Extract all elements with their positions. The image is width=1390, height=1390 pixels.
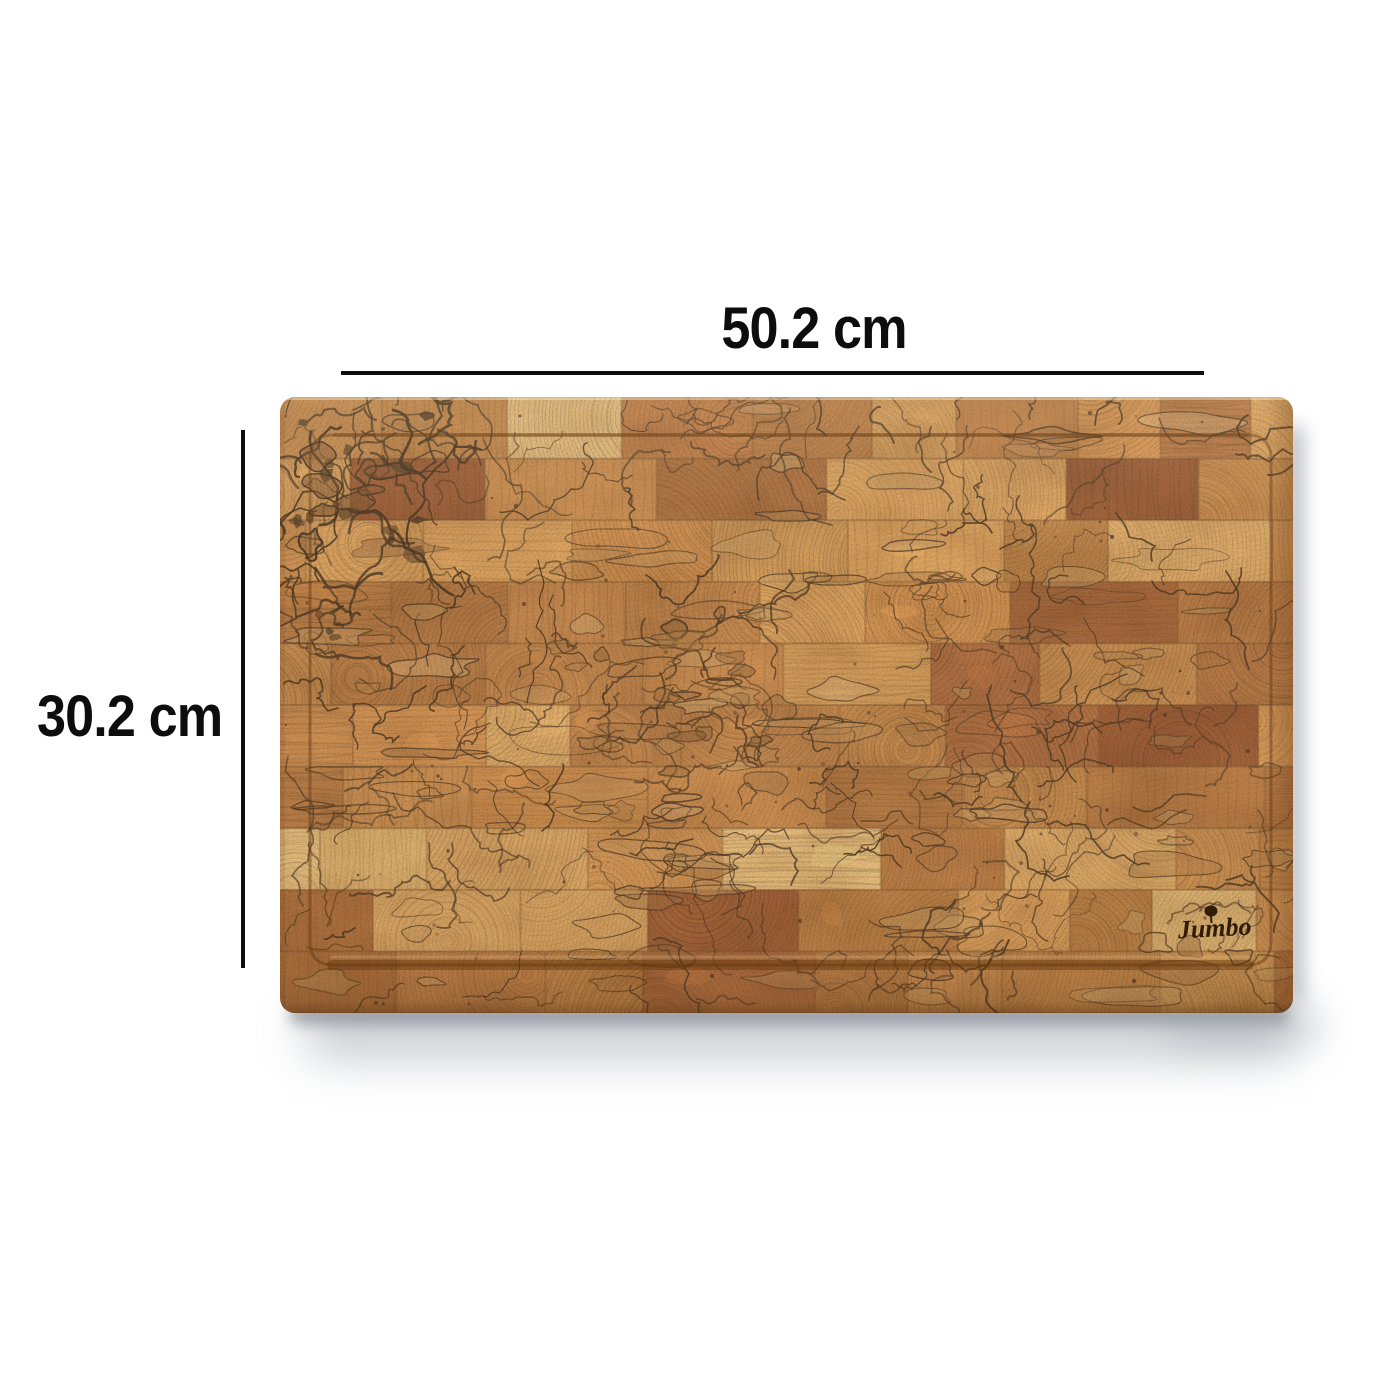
svg-text:Jumbo: Jumbo <box>1176 912 1252 945</box>
